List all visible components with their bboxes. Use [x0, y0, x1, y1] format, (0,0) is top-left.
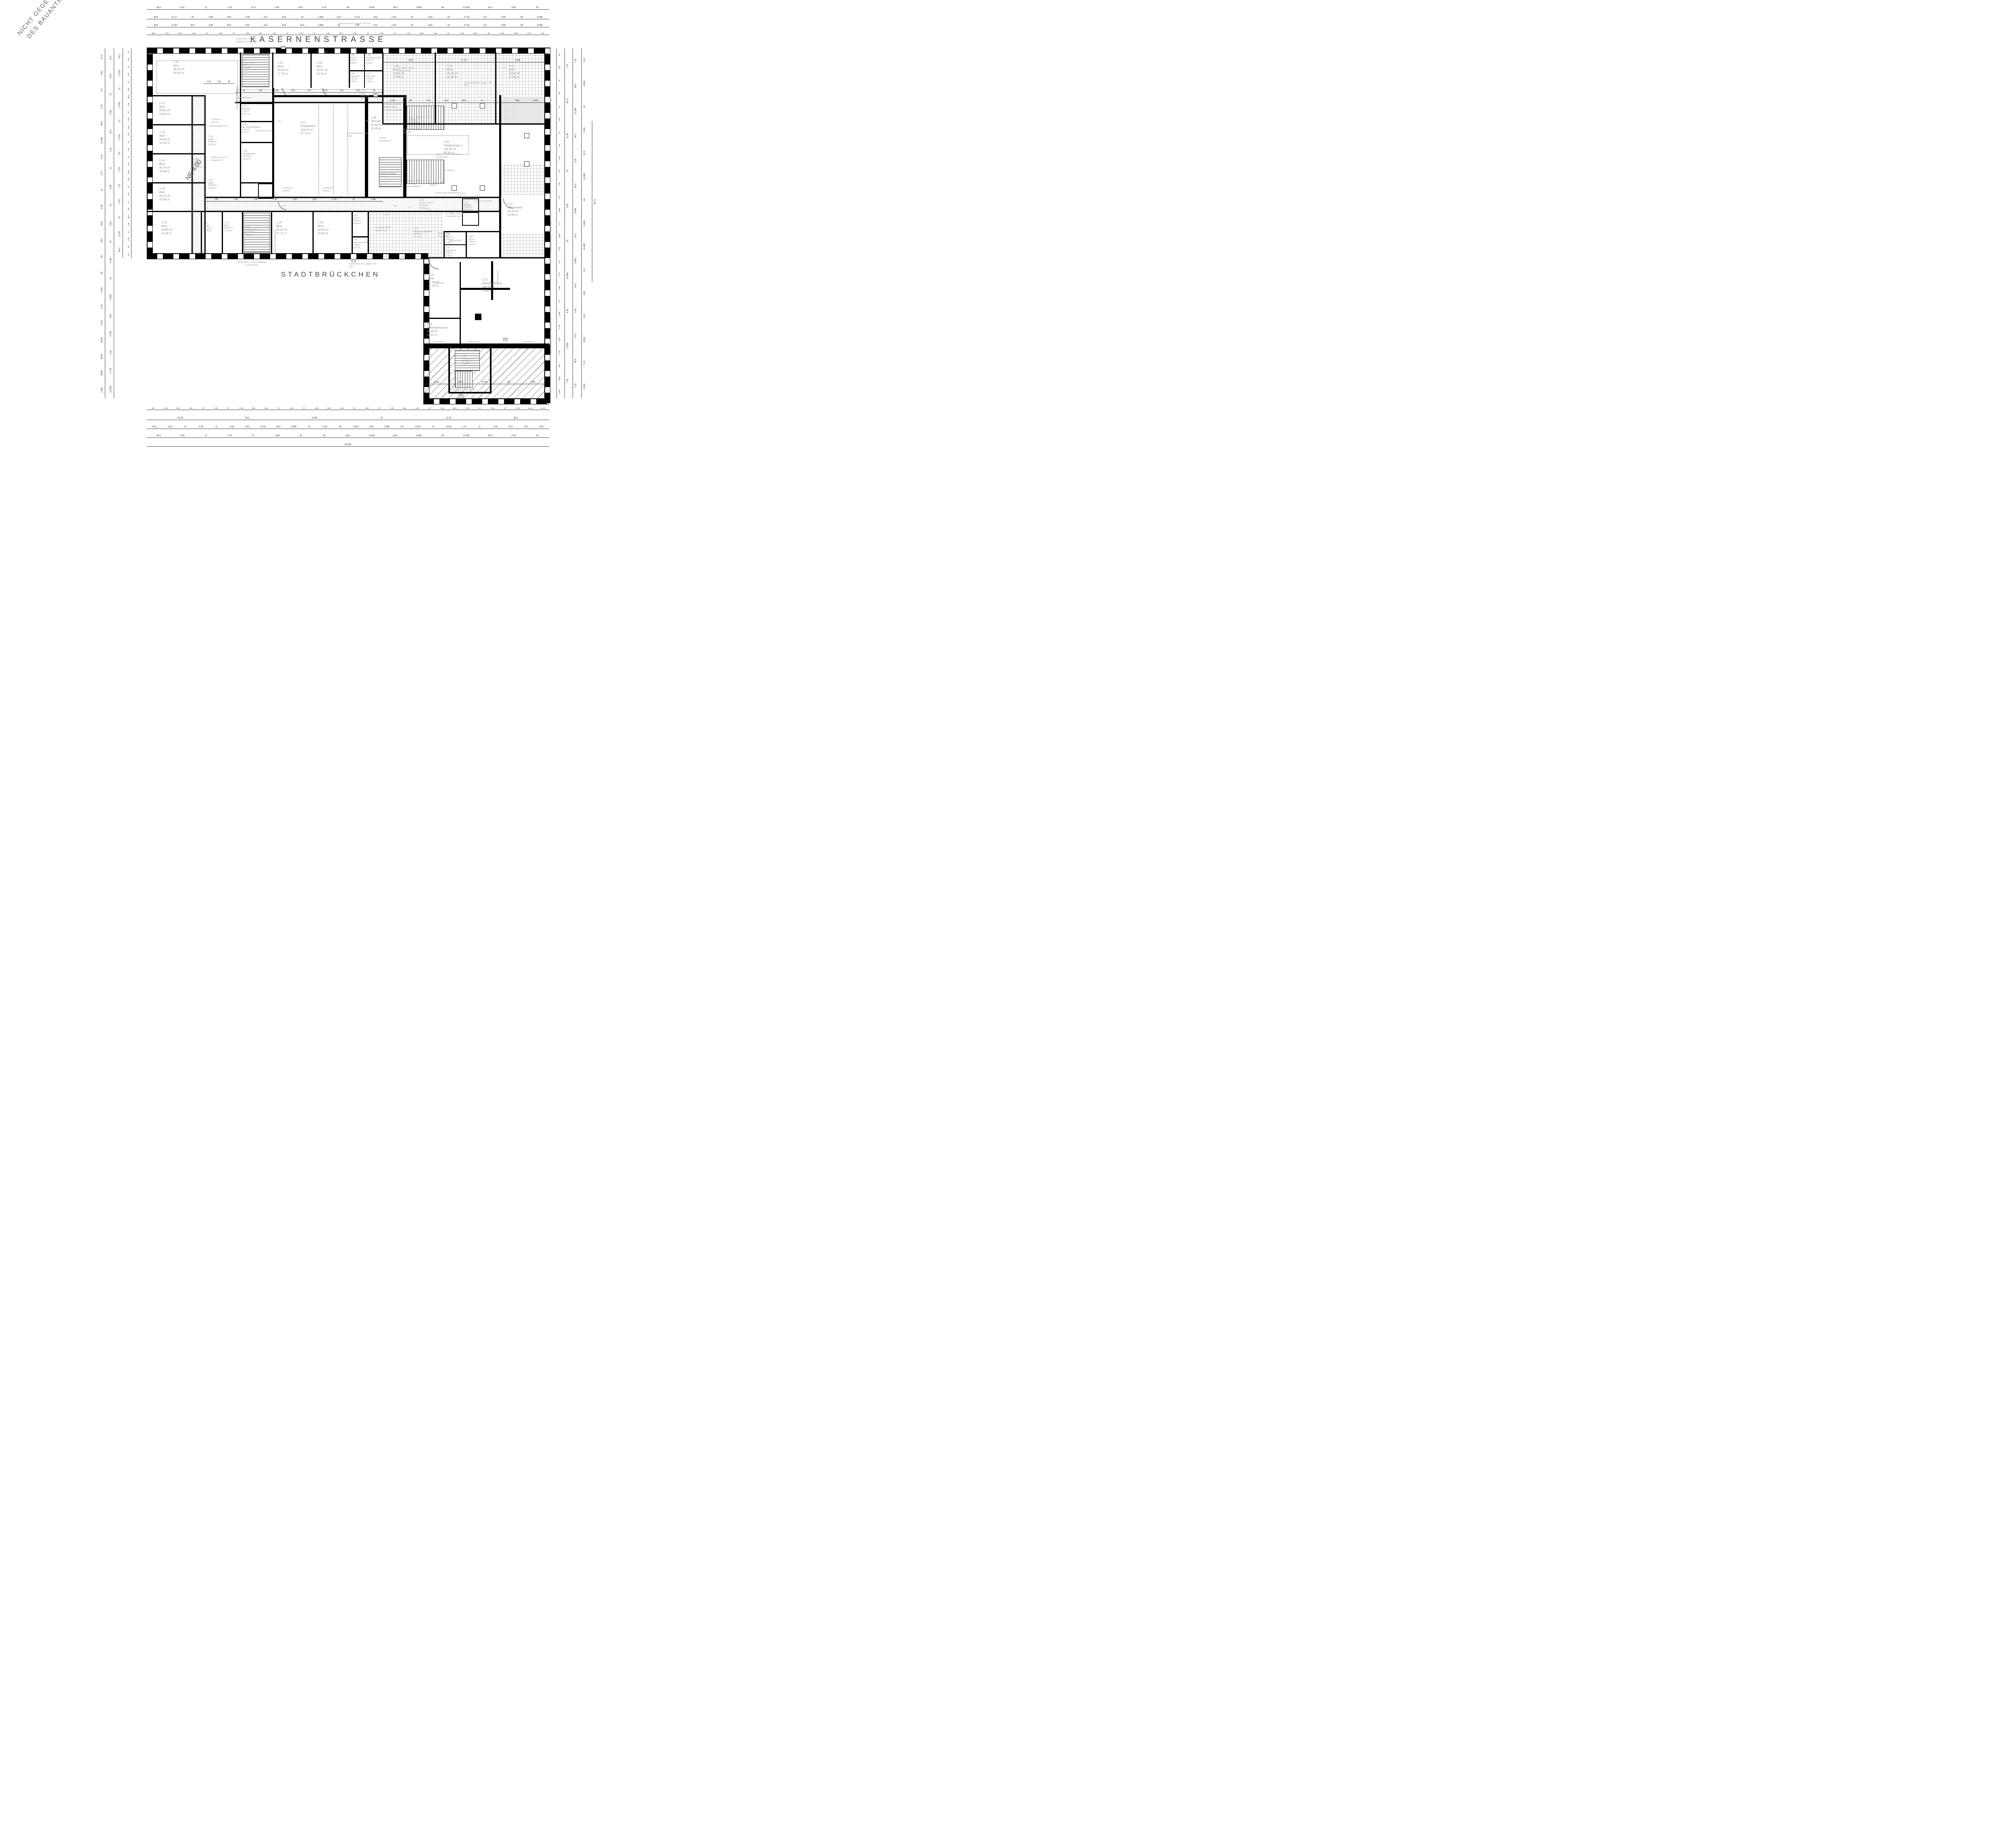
dim-value: 86.5: [127, 93, 129, 101]
pier: [475, 314, 481, 320]
dim-value: 9.5: [101, 82, 103, 98]
dim-value: 9.5: [119, 145, 121, 161]
annotation-abgeh-rd: D. abgeh. RD B. Teppich neu: [375, 227, 397, 232]
room-perimeter: 17.76 m: [224, 230, 233, 233]
dim-value: 1.55: [252, 90, 268, 93]
annotation-projektionswand: Projektionswand f. Beamer gem. Fachplanu…: [384, 103, 408, 112]
dim-value: 3.91: [238, 24, 256, 27]
dim-value: 3.465: [407, 435, 431, 438]
dim-chain-left-1: 41.54.969.51.7640.511.46541.51.77114.964…: [99, 48, 105, 398]
dim-value: 45.71: [594, 121, 596, 282]
room-perimeter: 9.33 m: [366, 62, 381, 65]
dim-value: 86.5: [248, 407, 260, 410]
dim-value: 1.785: [110, 251, 112, 270]
room-label-1-21: 1.21Vorraum H-WC2.58 m²6.52 m: [353, 239, 368, 249]
dim-value: 10.60: [410, 426, 425, 429]
dim-value: 51.505: [147, 443, 549, 447]
dim-value: 1.06: [558, 113, 560, 126]
dim-value: 11: [194, 435, 218, 438]
dim-value: 7.11: [566, 48, 569, 83]
dim-value: 7.695: [265, 435, 289, 438]
dim-value: 14.995: [110, 380, 112, 398]
room-perimeter: 14.48 m: [507, 213, 523, 217]
dim-value: 16: [293, 16, 311, 19]
room-number: 1.38: [208, 179, 217, 182]
room-number: 1.26: [427, 323, 447, 326]
room-name: Vorraum D-WC: [366, 57, 381, 60]
dim-value: 1.915: [348, 426, 363, 429]
dim-value: 1.895: [575, 248, 577, 273]
dim-value: 86.5: [335, 32, 348, 35]
room-area: 18.60 m²: [224, 227, 233, 230]
dim-chain-bottom-windows: 881.0584.51.06871.05871.0686.51.06871.05…: [147, 406, 549, 410]
annotation-abgeh-gk-kautschuk: D. abgeh. GK F30 B. Kautschuk neu: [446, 212, 470, 218]
room-label-1-29: 1.29Vorraum W2.46 m²6.76 m: [445, 247, 456, 257]
room-number: 1.39: [208, 135, 217, 138]
dim-value: 4.03: [384, 59, 437, 62]
room-name: Technik: [371, 120, 382, 123]
dim-value: 3.15: [575, 148, 577, 173]
wall: [425, 318, 460, 319]
room-area: 2.46 m²: [445, 252, 456, 255]
dim-chain-top-3: 40.511.6925.53.0925.53.9113.53.4214.51.8…: [147, 23, 549, 27]
room-area: 19.38 m²: [208, 184, 217, 187]
room-area: 20.78 m²: [159, 166, 171, 170]
dim-value: 1.99: [348, 24, 366, 27]
annotation-bodentank: Bodentank-Ausschnitt: [438, 232, 457, 238]
dim-value: 4.96: [101, 65, 103, 81]
dim-value: 1.085: [558, 230, 560, 243]
dim-value: 1.55: [304, 198, 324, 202]
dim-value: 11.065: [583, 165, 586, 188]
dim-value: 11: [194, 6, 218, 10]
dim-chain-left-3: 41.55.225113.735123.7359.53.769.53.76105…: [117, 48, 123, 258]
dim-value: 1.55: [246, 198, 265, 202]
room-area: 10.11 m²: [204, 227, 212, 230]
facade-west: [147, 48, 153, 258]
dim-value: 4.955: [110, 288, 112, 306]
wall: [240, 142, 273, 143]
room-number: 1.02: [447, 65, 458, 68]
dim-value: 1.06: [260, 407, 273, 410]
annotation-beton-parkett: D. Beton B. Parkett: [282, 187, 300, 193]
room-name: Aufzug: [464, 204, 473, 206]
dim-value: 86.5: [415, 32, 428, 35]
dim-value: 1.06: [310, 407, 323, 410]
dim-value: 86.5: [398, 407, 411, 410]
dim-value: 88: [147, 407, 159, 410]
ceiling-dashed-outline-1-11: [156, 60, 238, 94]
stage-dashed-line: [333, 106, 333, 194]
dim-value: 3.64: [265, 6, 289, 10]
dim-value: 40.5: [147, 6, 171, 10]
wall: [147, 153, 206, 154]
dim-value: 14.04: [360, 435, 383, 438]
room-name: WC-D: [350, 57, 358, 60]
room-name: Treppenhaus 3: [444, 144, 462, 148]
dim-value: 1.05: [360, 407, 373, 410]
wall: [240, 52, 241, 88]
dim-value: 1.06: [348, 32, 361, 35]
dim-value: 1.06: [127, 221, 129, 228]
annotation-beamer: Beamer gem. Abstimmung Bauaufsicht: [436, 153, 471, 159]
room-perimeter: 21.67 m: [427, 333, 447, 337]
wall: [271, 212, 272, 253]
dim-chain-right-4: 41.54.945102.24531.511.065446.04511.6959…: [581, 48, 587, 398]
room-number: 1.12: [159, 102, 171, 105]
room-perimeter: 31.12 m: [413, 236, 433, 239]
dim-value: 14.5: [366, 16, 384, 19]
room-label-1-14: 1.14Büro20.78 m²18.58 m: [159, 159, 171, 173]
dim-value: 11: [110, 85, 112, 104]
room-number: 1.01: [509, 65, 520, 68]
dim-value: 1.55: [301, 90, 317, 93]
dim-value: 1.06: [511, 407, 524, 410]
dim-value: 10: [566, 223, 569, 258]
room-area: 6.28 m²: [353, 220, 361, 223]
room-area: 2.58 m²: [353, 244, 368, 247]
dim-value: 40.5: [147, 16, 165, 19]
room-number: 1.10: [277, 61, 289, 65]
dim-value: 1.06: [235, 407, 247, 410]
room-label-1-38: 1.38Lager19.38 m²22.91 m: [208, 179, 217, 189]
wall: [310, 52, 312, 88]
dim-value: 1.05: [558, 87, 560, 100]
dim-value: 3.075: [255, 426, 271, 429]
dim-value: 11: [472, 426, 487, 429]
room-label-1-20: 1.20Büro26.55 m²20.62 m: [318, 221, 329, 235]
dim-value: 40: [431, 435, 454, 438]
dim-value: 1.06: [558, 139, 560, 152]
room-perimeter: 28.41 m: [243, 158, 255, 161]
dim-value: 23.5: [240, 426, 255, 429]
dim-value: 45: [312, 435, 336, 438]
door-arc: [428, 258, 439, 269]
dim-value: 62: [224, 81, 234, 84]
room-perimeter: 20.62 m: [318, 232, 329, 235]
room-perimeter: 17.71 m: [276, 232, 287, 235]
wall-brandwand: [423, 343, 549, 348]
wall-probebuehne-east: [365, 95, 368, 198]
dim-value: 62: [482, 32, 496, 35]
floor-plan-canvas: KASERNENSTRASSE STADTBRÜCKCHEN: [0, 0, 650, 460]
dim-value: 62: [525, 435, 549, 438]
dim-value: 13.5: [575, 323, 577, 348]
dim-chain-left-2: 41.54.93111.78513.51.21116.95123.63121.7…: [108, 48, 114, 398]
annotation-bauart-brandwand: Bauart einer Brandwand: [236, 60, 239, 109]
annotation-beton-parkett: D. Beton B. Parkett: [323, 187, 341, 193]
f90-tag: F90: [277, 120, 281, 123]
room-number: 1.07: [366, 73, 375, 75]
room-label-1-36: 1.36Technik40.64 m²30.45 m: [371, 116, 382, 131]
room-area: 26.55 m²: [318, 228, 329, 232]
dim-value: 42.5: [575, 123, 577, 148]
dim-value: 86.5: [127, 213, 129, 221]
dim-value: 86.5: [174, 32, 187, 35]
dim-value: 11.395: [575, 98, 577, 123]
dim-value: 12: [110, 196, 112, 214]
dim-value: 1.06: [127, 56, 129, 64]
room-number: 1.52: [245, 226, 260, 229]
dim-chain-right-windows: 881.06321.05871.06341.061.07547.51.062.7…: [556, 48, 562, 398]
wall: [147, 95, 206, 96]
dim-value: 87: [348, 407, 360, 410]
room-name: Büro: [159, 162, 171, 166]
wall: [382, 52, 383, 124]
dim-value: 88: [402, 100, 419, 103]
dim-value: 4.07: [437, 100, 455, 103]
dim-value: 10: [583, 95, 586, 119]
dim-value: 5.53: [171, 435, 194, 438]
dim-chain-bottom-total: 51.505: [147, 443, 549, 447]
room-area: 48.52 m²: [361, 95, 370, 98]
dim-value: 4.03: [421, 24, 439, 27]
dim-value: 1.06: [127, 176, 129, 183]
dim-value: 1.725: [324, 198, 344, 202]
dim-value: 34: [558, 126, 560, 139]
dim-chain-inner: 1.551.5562: [204, 81, 234, 84]
dim-value: 88.5: [455, 100, 473, 103]
dim-value: 1.075: [558, 152, 560, 165]
room-perimeter: 13.99 m: [204, 230, 212, 233]
dim-value: 40: [431, 6, 454, 10]
dim-value: 87: [273, 407, 285, 410]
room-name: Büro: [318, 225, 329, 228]
dim-value: 1.05: [127, 71, 129, 79]
dim-value: 2.115: [348, 16, 366, 19]
dim-chain-left-windows: 781.06321.05871.0686.51.06871.0686.51.06…: [126, 48, 131, 258]
street-name-stadtbrueckchen: STADTBRÜCKCHEN: [266, 270, 395, 279]
dim-value: 10: [348, 417, 415, 420]
dim-value: 3.85: [494, 16, 512, 19]
room-area: 18.60 m²: [276, 228, 287, 232]
room-label-1-54: 1.54Treppenhaus22.17 m²21.94 m: [242, 59, 255, 69]
dim-value: 3.42: [275, 24, 293, 27]
dim-value: 9.5: [583, 258, 586, 282]
room-number: 1.13: [159, 131, 171, 134]
dim-value: 1.55: [269, 90, 285, 93]
dim-value: 3.845: [491, 59, 544, 62]
annotation-rettungsweg: 2. Rettungsweg: [497, 242, 500, 286]
room-name: Schacht: [242, 108, 250, 110]
dim-value: 1.55: [285, 90, 301, 93]
dim-value: 10: [302, 426, 317, 429]
dim-value: 2.04: [193, 426, 208, 429]
dim-value: 1.55: [265, 198, 285, 202]
annotation-bauart-brandwand: Bauart einer Brandwand: [452, 389, 500, 391]
room-perimeter: 9.03 m: [350, 62, 358, 65]
dim-value: 78: [127, 48, 129, 56]
dim-value: 5.715: [458, 16, 476, 19]
annotation-beton-estrich: D. Beton B. Estrich: [211, 119, 229, 124]
dim-value: 1.76: [101, 98, 103, 115]
dim-value: 11: [101, 182, 103, 198]
dim-value: 41.5: [110, 48, 112, 67]
room-label-1-22: 1.22WC-H6.28 m²10.68 m: [353, 214, 361, 225]
dim-value: 2.775: [558, 346, 560, 359]
annotation-luftraum: Luftraum: [445, 169, 454, 172]
dim-chain-extension-bottom: 3.22525.55.615505.58: [424, 381, 545, 384]
dim-value: 8.555: [566, 328, 569, 363]
room-perimeter: 11.67 m: [242, 113, 250, 116]
room-perimeter: 58.07 m: [361, 98, 370, 100]
dim-value: 4.93: [110, 67, 112, 85]
dim-value: 13.5: [256, 24, 275, 27]
dim-value: 7.51: [566, 363, 569, 398]
room-number: 1.21: [353, 239, 368, 241]
dim-value: 87: [474, 407, 486, 410]
annotation-motorantrieb: Motorantrieb: [449, 239, 464, 242]
dim-value: 1.06: [429, 32, 442, 35]
wall: [495, 52, 496, 124]
room-name: Büro: [276, 225, 287, 228]
dim-value: 86.5: [127, 168, 129, 176]
room-number: 1.29: [445, 247, 456, 250]
dim-value: 1.55: [226, 198, 246, 202]
room-number: 1.08: [350, 73, 360, 75]
dim-value: 1.55: [206, 198, 226, 202]
dim-value: 1.55: [285, 198, 305, 202]
dim-value: 36.5: [336, 435, 360, 438]
dim-value: 3.09: [202, 16, 220, 19]
f30-tag: F30: [394, 205, 397, 207]
dim-value: 3.93: [224, 426, 240, 429]
room-label-1-02: 1.02Büro28.26 m²21.38 m: [447, 65, 458, 79]
room-name: Klimatechnik: [243, 153, 255, 156]
dim-value: 87: [499, 407, 511, 410]
dim-value: 87: [127, 183, 129, 191]
column-square: [524, 133, 529, 138]
dim-value: 4.04: [502, 6, 526, 10]
room-perimeter: 11.41 m: [469, 244, 476, 246]
dim-value: 1.06: [558, 61, 560, 74]
dim-value: 87: [127, 198, 129, 206]
annotation-not-part: NICHT GEGENSTAND DES BAUANTRAGS: [10, 0, 83, 50]
dim-value: 18.85: [101, 365, 103, 381]
dim-value: 2.77: [558, 217, 560, 230]
dim-value: 40.5: [110, 306, 112, 325]
dim-value: 1.21: [110, 140, 112, 159]
dim-value: 1.77: [456, 426, 472, 429]
room-perimeter: 30.45 m: [371, 127, 382, 131]
dim-value: 28.5: [534, 426, 549, 429]
dim-value: 4.945: [583, 72, 586, 95]
dim-value: 1.05: [127, 191, 129, 198]
dim-value: 1.05: [110, 343, 112, 362]
wall: [240, 103, 273, 104]
dim-value: 9.5: [394, 426, 410, 429]
dim-value: 87: [127, 153, 129, 161]
dim-value: 11.36: [566, 119, 569, 154]
f90-tag: F90: [427, 209, 431, 211]
dim-value: 3.735: [119, 97, 121, 113]
dim-value: 11.525: [454, 435, 478, 438]
dim-value: 4.04: [502, 435, 526, 438]
room-label-1-37: 1.37Probebühne164.10 m²51.73 m: [300, 121, 316, 135]
dim-value: 1.075: [558, 333, 560, 346]
dim-chain-grid-offices-1: 4.035.7153.845: [384, 59, 544, 62]
room-number: 1.25: [428, 273, 439, 277]
dim-value: 1.085: [558, 282, 560, 295]
dim-value: 41.5: [101, 48, 103, 65]
dim-chain-bottom-3: 40.55.53112.04113.9323.53.07530.53.89510…: [147, 425, 549, 429]
dim-value: 10: [439, 16, 458, 19]
dim-value: 87: [298, 407, 310, 410]
dim-value: 13.5: [583, 305, 586, 328]
dim-value: 12: [119, 113, 121, 129]
room-perimeter: 6.52 m: [353, 247, 368, 250]
room-label-1-26: 1.26Aufenthaltsraum25.86 m²21.67 m: [427, 323, 447, 337]
room-name: Büro: [159, 191, 171, 194]
room-label-1-05: 1.05Vorraum D-WC5.32 m²9.33 m: [366, 54, 381, 65]
room-name: Aufenthaltsraum: [427, 326, 447, 330]
wall: [349, 70, 383, 71]
room-name: Vorraum H-WC: [353, 241, 368, 244]
dim-value: 87: [127, 108, 129, 116]
dim-value: 66: [127, 251, 129, 258]
dim-value: 1.78: [218, 6, 242, 10]
room-perimeter: 6.82 m: [350, 81, 360, 83]
dim-value: 3.895: [286, 426, 302, 429]
dim-value: 10: [119, 210, 121, 226]
na-marker: NA: [352, 259, 356, 262]
dim-value: 1.05: [294, 32, 308, 35]
dim-value: 1.05: [210, 407, 222, 410]
dim-value: 87: [442, 32, 455, 35]
dim-value: 2.66: [575, 298, 577, 323]
dim-value: 47.5: [558, 165, 560, 178]
dim-value: 16.42: [524, 407, 537, 410]
dim-value: 10: [110, 269, 112, 288]
dim-value: 62: [525, 6, 549, 10]
dim-value: 1.085: [363, 198, 383, 202]
dim-value: 3.735: [119, 129, 121, 145]
room-area: 19.05 m²: [509, 72, 520, 75]
dim-value: 14.5: [575, 273, 577, 298]
dim-value: 13.5: [366, 24, 384, 27]
dim-value: 2.775: [101, 315, 103, 331]
room-area: 20.64 m²: [159, 138, 171, 142]
f90-tag: F90: [502, 67, 506, 69]
annotation-bodenverteilung: Bodenverteilung gem. Statik: [347, 132, 372, 138]
dim-value: 3.465: [407, 6, 431, 10]
wall-flur135-south: [206, 211, 500, 212]
dim-value: 86.5: [449, 407, 461, 410]
stage-dashed-line: [319, 106, 319, 194]
dim-value: 9.5: [476, 16, 494, 19]
wall-treppenhaus3-east: [499, 95, 501, 258]
dim-value: 1.06: [411, 407, 423, 410]
annotation-glaswand: GLASWAND: [423, 202, 434, 204]
room-perimeter: 9.60 m: [462, 363, 475, 366]
dim-value: 9.5: [476, 24, 494, 27]
dim-value: 19.5: [478, 6, 502, 10]
dim-value: 28.5: [482, 417, 549, 420]
dim-value: 18.95: [101, 348, 103, 365]
dim-value: 2.785: [558, 321, 560, 333]
f30-tag: F30: [385, 214, 389, 216]
dim-value: 1.06: [127, 86, 129, 94]
room-number: 1.54: [242, 59, 255, 62]
dim-value: 5.215: [119, 226, 121, 242]
wall: [240, 182, 273, 183]
room-perimeter: 10.68 m: [353, 223, 361, 225]
dim-value: 14.5: [293, 24, 311, 27]
dim-value: 3.76: [119, 194, 121, 210]
room-number: 1.06: [350, 54, 358, 57]
dim-value: 86.5: [127, 123, 129, 131]
room-name: Be- und Entlüftung: [242, 126, 260, 129]
